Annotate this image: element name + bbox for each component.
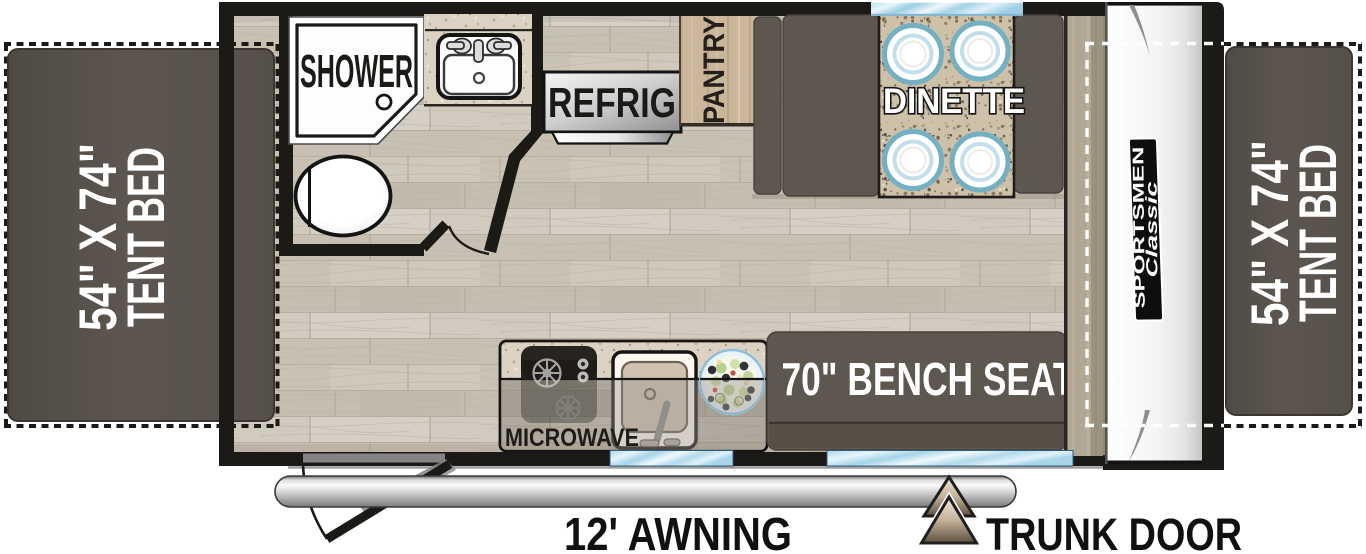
svg-text:70" BENCH SEAT: 70" BENCH SEAT [782,353,1075,405]
svg-text:TENT BED: TENT BED [117,147,176,327]
svg-text:Classic: Classic [1144,181,1162,277]
svg-text:PANTRY: PANTRY [698,16,731,124]
svg-text:REFRIG: REFRIG [548,79,676,126]
svg-text:TRUNK DOOR: TRUNK DOOR [986,509,1242,554]
svg-text:MICROWAVE: MICROWAVE [505,424,639,452]
svg-text:12' AWNING: 12' AWNING [564,508,792,554]
svg-text:DINETTE: DINETTE [883,82,1025,121]
svg-text:TENT BED: TENT BED [1289,144,1348,322]
svg-text:SHOWER: SHOWER [300,45,413,97]
